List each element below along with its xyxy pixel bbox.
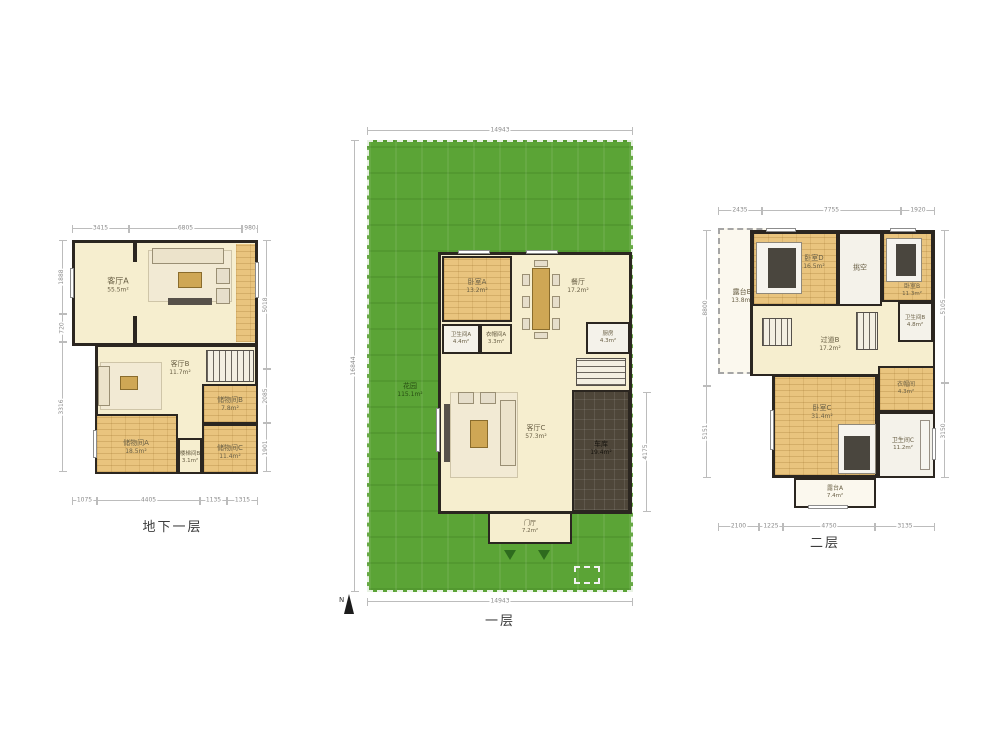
chair-icon: [552, 296, 560, 308]
room-garage: [572, 390, 630, 512]
chair-icon: [522, 274, 530, 286]
chair-icon: [534, 260, 548, 267]
room-storage-c: [202, 424, 258, 474]
dimension-basement-bottom-3: 1135: [200, 500, 227, 501]
window: [436, 408, 440, 452]
coffee-table-icon: [178, 272, 202, 288]
dimension-basement-bottom-2: 4405: [97, 500, 200, 501]
shrub-icon: [504, 550, 516, 560]
room-cloak-a: [480, 324, 512, 354]
window: [808, 505, 848, 509]
dimension-second-top-1: 2435: [718, 210, 762, 211]
dimension-second-right-1: 5105: [944, 230, 945, 383]
room-void: [838, 232, 882, 306]
dimension-basement-top-1: 3415: [72, 228, 129, 229]
room-storage-a: [95, 414, 178, 474]
garden-gate: [574, 566, 600, 584]
room-stair-b: [178, 438, 202, 474]
room-storage-b: [202, 384, 258, 424]
window: [770, 410, 774, 450]
window: [458, 250, 490, 254]
armchair-icon: [458, 392, 474, 404]
armchair-icon: [216, 288, 230, 304]
dimension-second-bottom-2: 1225: [759, 526, 783, 527]
plan-title-basement: 地下一层: [70, 516, 275, 535]
tv-cabinet-icon: [168, 298, 212, 305]
dimension-first-right: 4175: [646, 392, 647, 512]
stairs-icon: [856, 312, 878, 350]
dimension-second-bottom-1: 2100: [718, 526, 759, 527]
dimension-second-left-1: 8800: [706, 230, 707, 386]
bed-blanket: [768, 248, 796, 288]
stairs-icon: [762, 318, 792, 346]
room-bath-a: [442, 324, 480, 354]
dimension-basement-top-2: 6805: [129, 228, 242, 229]
plan-title-second: 二层: [715, 532, 935, 551]
dining-table-icon: [532, 268, 550, 330]
bed-blanket: [844, 436, 870, 470]
dimension-basement-left-1: 1888: [62, 240, 63, 314]
dimension-basement-bottom-1: 1075: [72, 500, 97, 501]
dimension-basement-top-3: 980: [242, 228, 258, 229]
room-bedroom-a: [442, 256, 512, 322]
dimension-second-bottom-4: 3135: [875, 526, 935, 527]
dimension-second-top-2: 7755: [762, 210, 901, 211]
coffee-table-icon: [120, 376, 138, 390]
chair-icon: [534, 332, 548, 339]
room-foyer: [488, 512, 572, 544]
window: [890, 228, 916, 232]
window: [70, 268, 74, 298]
dimension-basement-bottom-4: 1315: [227, 500, 258, 501]
room-bath-b: [898, 302, 933, 342]
dimension-first-bottom: 14943: [367, 601, 633, 602]
window: [255, 262, 259, 298]
window: [526, 250, 558, 254]
sofa-icon: [500, 400, 516, 466]
window: [766, 228, 796, 232]
dimension-first-top: 14943: [367, 130, 633, 131]
wood-floor-strip: [236, 244, 255, 342]
chair-icon: [552, 274, 560, 286]
wall-stub: [133, 240, 137, 262]
plan-title-first: 一层: [367, 610, 633, 629]
shrub-icon: [538, 550, 550, 560]
dimension-first-left: 16844: [354, 140, 355, 592]
dimension-basement-right-2: 2085: [266, 369, 267, 423]
dimension-second-bottom-3: 4750: [783, 526, 875, 527]
window: [932, 428, 936, 460]
coffee-table-icon: [470, 420, 488, 448]
floorplan-canvas: 3415 6805 980 5018 2085 1901 1075 4405 1…: [0, 0, 998, 749]
armchair-icon: [480, 392, 496, 404]
entry-steps-icon: [576, 358, 626, 386]
armchair-icon: [216, 268, 230, 284]
bathtub-icon: [920, 420, 930, 470]
room-terrace-a: [794, 478, 876, 508]
dimension-basement-right-1: 5018: [266, 240, 267, 369]
wall-stub: [133, 316, 137, 346]
tv-cabinet-icon: [444, 404, 450, 462]
dimension-basement-left-3: 3316: [62, 342, 63, 472]
dimension-second-top-3: 1920: [901, 210, 935, 211]
bed-blanket: [896, 244, 916, 276]
sofa-icon: [98, 366, 110, 406]
chair-icon: [522, 318, 530, 330]
window: [93, 430, 97, 458]
chair-icon: [522, 296, 530, 308]
sofa-icon: [152, 248, 224, 264]
room-kitchen: [586, 322, 630, 354]
dimension-second-left-2: 5151: [706, 386, 707, 478]
stairs-icon: [206, 350, 254, 382]
chair-icon: [552, 318, 560, 330]
dimension-second-right-2: 3150: [944, 383, 945, 478]
north-arrow-icon: N: [344, 594, 354, 614]
dimension-basement-right-3: 1901: [266, 423, 267, 472]
dimension-basement-left-2: 720: [62, 314, 63, 342]
room-cloak: [878, 366, 935, 412]
